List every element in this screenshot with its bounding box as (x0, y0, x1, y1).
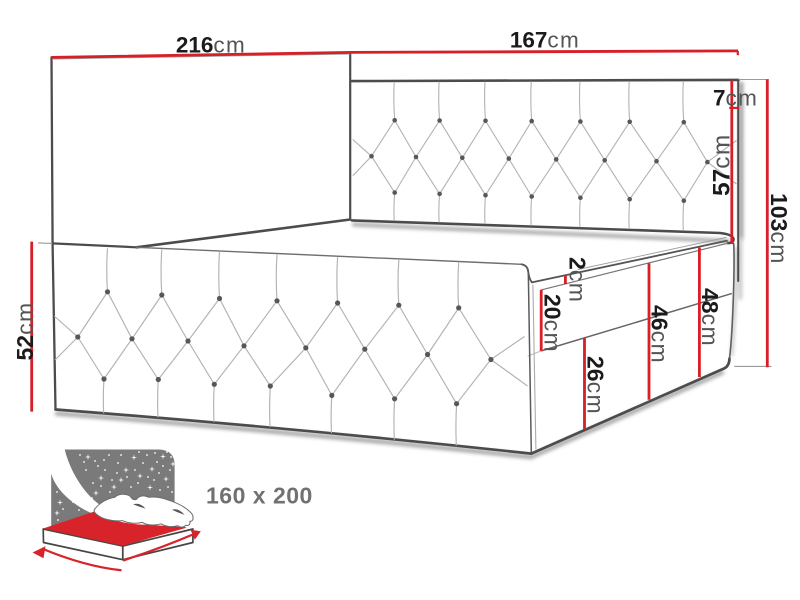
svg-text:20cm: 20cm (540, 294, 566, 353)
svg-text:26cm: 26cm (583, 356, 609, 415)
svg-text:7cm: 7cm (713, 86, 758, 111)
svg-text:216cm: 216cm (176, 32, 246, 57)
svg-text:52cm: 52cm (12, 301, 38, 360)
svg-text:48cm: 48cm (697, 288, 723, 347)
svg-text:2cm: 2cm (564, 257, 590, 303)
svg-text:57cm: 57cm (708, 133, 735, 196)
svg-text:46cm: 46cm (646, 305, 672, 364)
svg-text:160 x 200: 160 x 200 (206, 483, 313, 509)
svg-text:167cm: 167cm (510, 27, 580, 52)
svg-text:103cm: 103cm (766, 193, 792, 265)
